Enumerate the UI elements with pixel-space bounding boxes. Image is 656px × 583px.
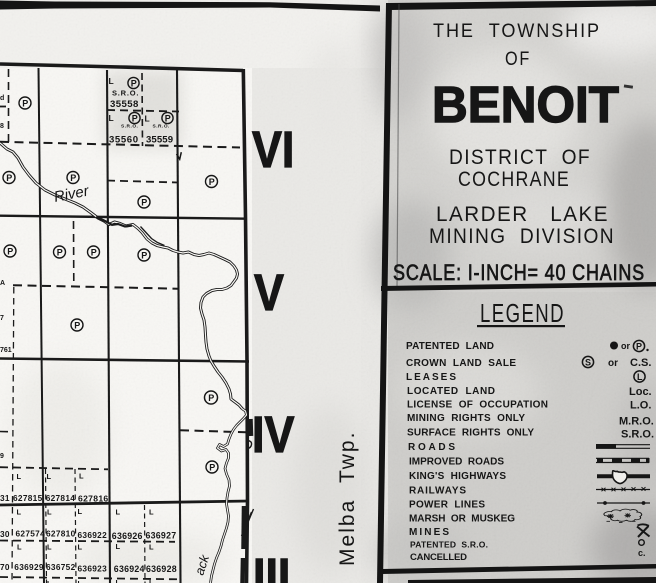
svg-text:P: P bbox=[74, 320, 80, 330]
svg-text:IMPROVED ROADS: IMPROVED ROADS bbox=[409, 457, 504, 468]
svg-text:35560: 35560 bbox=[109, 135, 139, 146]
svg-text:A: A bbox=[0, 280, 5, 287]
svg-text:L: L bbox=[109, 76, 114, 86]
svg-text:9: 9 bbox=[0, 453, 4, 460]
svg-text:7: 7 bbox=[0, 315, 4, 322]
svg-text:S: S bbox=[585, 358, 591, 368]
svg-text:RAILWAYS: RAILWAYS bbox=[409, 486, 466, 497]
svg-text:KING'S HIGHWAYS: KING'S HIGHWAYS bbox=[409, 471, 506, 482]
svg-text:L: L bbox=[78, 543, 83, 552]
svg-text:L: L bbox=[116, 508, 121, 517]
svg-text:L: L bbox=[78, 507, 83, 516]
svg-text:627816: 627816 bbox=[78, 494, 108, 504]
svg-text:S.R.O.: S.R.O. bbox=[121, 124, 138, 130]
svg-text:c.: c. bbox=[638, 548, 646, 558]
svg-text:S.R.O.: S.R.O. bbox=[153, 124, 170, 130]
svg-text:L: L bbox=[78, 579, 83, 583]
svg-text:L: L bbox=[47, 472, 52, 481]
svg-text:L: L bbox=[47, 543, 52, 552]
svg-text:Loc.: Loc. bbox=[629, 386, 652, 398]
svg-text:V: V bbox=[254, 265, 284, 321]
svg-text:S.R.O.: S.R.O. bbox=[621, 429, 654, 441]
svg-text:L: L bbox=[149, 543, 154, 552]
svg-text:OF: OF bbox=[505, 49, 531, 70]
svg-text:CANCELLED: CANCELLED bbox=[410, 552, 467, 563]
svg-text:L: L bbox=[47, 508, 52, 517]
svg-text:P: P bbox=[132, 113, 138, 123]
svg-text:627810: 627810 bbox=[46, 529, 76, 539]
svg-text:PATENTED S.R.O.: PATENTED S.R.O. bbox=[410, 540, 488, 550]
svg-text:P: P bbox=[131, 78, 137, 88]
svg-text:636927: 636927 bbox=[146, 531, 177, 541]
svg-text:LARDER LAKE: LARDER LAKE bbox=[436, 203, 609, 226]
svg-text:BENOIT: BENOIT bbox=[432, 76, 619, 133]
svg-text:S.R.O.: S.R.O. bbox=[112, 89, 139, 98]
svg-text:L: L bbox=[149, 508, 154, 517]
svg-text:L: L bbox=[149, 578, 154, 583]
svg-text:DISTRICT OF: DISTRICT OF bbox=[449, 146, 591, 169]
svg-text:L: L bbox=[116, 578, 121, 583]
svg-text:P: P bbox=[208, 393, 214, 403]
svg-text:MINING RIGHTS ONLY: MINING RIGHTS ONLY bbox=[407, 413, 525, 424]
svg-text:LEGEND: LEGEND bbox=[480, 298, 565, 328]
svg-text:P: P bbox=[6, 173, 12, 183]
svg-text:III: III bbox=[253, 549, 290, 583]
svg-text:L: L bbox=[116, 542, 121, 551]
svg-text:P: P bbox=[91, 247, 97, 257]
svg-text:P: P bbox=[141, 197, 147, 207]
svg-text:MINES: MINES bbox=[409, 527, 449, 538]
svg-text:P: P bbox=[22, 98, 28, 108]
svg-text:L: L bbox=[79, 472, 84, 481]
svg-text:ROADS: ROADS bbox=[408, 442, 455, 453]
svg-text:636929: 636929 bbox=[14, 562, 44, 572]
svg-text:P: P bbox=[70, 173, 76, 183]
svg-text:35559: 35559 bbox=[146, 135, 173, 146]
svg-text:PATENTED LAND: PATENTED LAND bbox=[406, 341, 494, 352]
svg-text:POWER LINES: POWER LINES bbox=[409, 500, 485, 511]
svg-text:CROWN LAND SALE: CROWN LAND SALE bbox=[406, 358, 516, 369]
svg-text:8: 8 bbox=[0, 123, 4, 130]
svg-text:P: P bbox=[636, 342, 642, 352]
svg-text:627814: 627814 bbox=[46, 493, 76, 503]
svg-text:M.R.O.: M.R.O. bbox=[619, 416, 654, 428]
svg-text:636922: 636922 bbox=[78, 530, 108, 540]
svg-text:C.S.: C.S. bbox=[630, 357, 651, 369]
svg-text:35558: 35558 bbox=[110, 99, 139, 110]
svg-text:MINING DIVISION: MINING DIVISION bbox=[429, 225, 615, 248]
svg-text:636923: 636923 bbox=[78, 564, 108, 574]
svg-text:P: P bbox=[7, 246, 13, 256]
svg-text:627574: 627574 bbox=[16, 529, 46, 539]
svg-text:COCHRANE: COCHRANE bbox=[458, 168, 570, 191]
svg-text:P: P bbox=[141, 250, 147, 260]
svg-text:30: 30 bbox=[0, 529, 10, 539]
svg-text:636924: 636924 bbox=[114, 564, 145, 574]
svg-text:VI: VI bbox=[252, 122, 294, 178]
svg-text:L: L bbox=[17, 543, 22, 552]
svg-text:P: P bbox=[165, 113, 171, 123]
svg-text:d: d bbox=[0, 95, 4, 102]
svg-text:70: 70 bbox=[0, 562, 10, 572]
svg-text:LOCATED LAND: LOCATED LAND bbox=[407, 386, 495, 397]
svg-text:761: 761 bbox=[0, 347, 12, 354]
svg-text:or: or bbox=[621, 341, 630, 351]
svg-text:P: P bbox=[57, 247, 63, 257]
svg-text:636752: 636752 bbox=[46, 562, 76, 572]
svg-text:P: P bbox=[209, 177, 215, 187]
svg-text:31: 31 bbox=[0, 493, 10, 503]
svg-text:636928: 636928 bbox=[146, 564, 177, 574]
svg-text:P: P bbox=[209, 462, 215, 472]
svg-text:627815: 627815 bbox=[13, 493, 43, 503]
svg-text:L: L bbox=[17, 508, 22, 517]
svg-text:L: L bbox=[17, 472, 22, 481]
svg-text:or: or bbox=[608, 358, 618, 369]
svg-text:636926: 636926 bbox=[112, 531, 143, 541]
svg-text:SURFACE RIGHTS ONLY: SURFACE RIGHTS ONLY bbox=[407, 428, 534, 439]
svg-text:MARSH OR MUSKEG: MARSH OR MUSKEG bbox=[409, 514, 515, 525]
svg-text:L: L bbox=[47, 579, 52, 583]
svg-text:Melba Twp.: Melba Twp. bbox=[336, 432, 359, 566]
svg-text:THE TOWNSHIP: THE TOWNSHIP bbox=[433, 21, 601, 42]
svg-text:LEASES: LEASES bbox=[406, 372, 456, 383]
svg-text:L: L bbox=[145, 114, 150, 124]
svg-text:L: L bbox=[109, 113, 114, 123]
svg-text:L: L bbox=[637, 372, 643, 382]
svg-text:IV: IV bbox=[252, 407, 294, 463]
svg-text:SCALE: I-INCH= 40 CHAINS: SCALE: I-INCH= 40 CHAINS bbox=[393, 260, 645, 285]
svg-text:LICENSE OF OCCUPATION: LICENSE OF OCCUPATION bbox=[407, 400, 548, 411]
svg-text:L.O.: L.O. bbox=[630, 400, 651, 412]
